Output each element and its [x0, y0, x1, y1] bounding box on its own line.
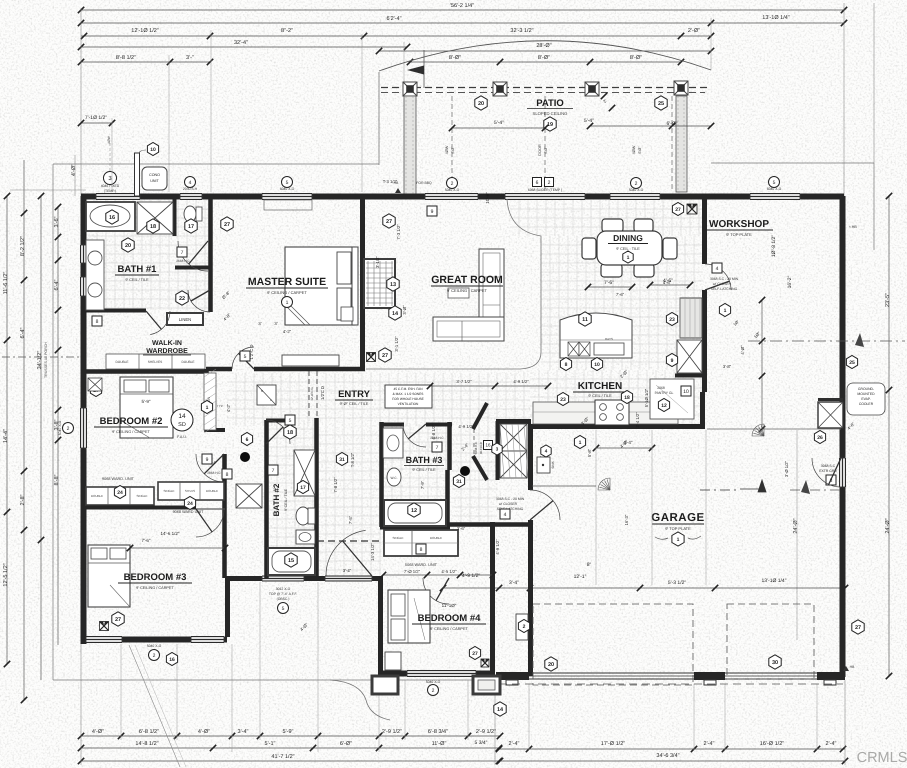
svg-text:9'-Ø" CEIL / TILE: 9'-Ø" CEIL / TILE [340, 402, 369, 406]
svg-text:GREAT ROOM: GREAT ROOM [431, 274, 503, 286]
svg-text:TRUSSES AT PORCH: TRUSSES AT PORCH [44, 342, 48, 378]
svg-text:12'-1": 12'-1" [574, 574, 587, 580]
svg-text:28'-Ø": 28'-Ø" [536, 43, 551, 49]
svg-text:FOR BBQ: FOR BBQ [416, 181, 432, 185]
svg-text:SD: SD [178, 422, 186, 428]
svg-text:7'-6": 7'-6" [142, 538, 151, 543]
svg-text:UNIT: UNIT [150, 179, 159, 183]
svg-text:'56'-2 1/4": '56'-2 1/4" [450, 3, 474, 9]
svg-text:2'-9 1/2": 2'-9 1/2" [382, 729, 402, 735]
svg-text:9: 9 [431, 209, 434, 215]
svg-text:45 C.F.M. ESH. FAN: 45 C.F.M. ESH. FAN [393, 387, 423, 391]
svg-text:9' CEILING / CARPET: 9' CEILING / CARPET [112, 430, 150, 434]
svg-text:4'-9 1/2": 4'-9 1/2" [513, 379, 529, 384]
svg-text:2: 2 [635, 181, 638, 187]
svg-text:4'-Ø": 4'-Ø" [92, 729, 104, 735]
svg-text:3012 X-O: 3012 X-O [276, 587, 291, 591]
svg-text:5: 5 [773, 180, 776, 186]
svg-text:DOUBLE: DOUBLE [91, 494, 103, 498]
svg-text:2668 H.C: 2668 H.C [176, 259, 190, 263]
svg-text:16'-2": 16'-2" [787, 275, 793, 288]
svg-text:8: 8 [565, 362, 568, 368]
svg-text:CRMLS: CRMLS [857, 750, 907, 766]
svg-text:RAYS: RAYS [605, 337, 613, 341]
svg-text:1: 1 [579, 440, 582, 446]
svg-text:25: 25 [658, 101, 664, 107]
svg-text:EVAP.: EVAP. [861, 397, 871, 401]
svg-text:10: 10 [683, 389, 689, 395]
svg-text:5: 5 [289, 418, 292, 424]
svg-text:& MAX. 1 1/2 SONES: & MAX. 1 1/2 SONES [393, 392, 424, 396]
svg-text:SINGLE: SINGLE [163, 489, 174, 493]
svg-text:3': 3' [274, 321, 277, 326]
svg-text:PANTRY GL: PANTRY GL [655, 391, 674, 395]
svg-text:10'-6": 10'-6" [485, 192, 490, 204]
svg-text:BI-FOLD: BI-FOLD [479, 441, 483, 454]
svg-text:12: 12 [661, 403, 667, 409]
svg-text:KITCHEN: KITCHEN [578, 381, 622, 392]
svg-text:24: 24 [117, 490, 123, 496]
svg-text:14'-4": 14'-4" [3, 429, 9, 443]
svg-text:3'-'': 3'-'' [186, 55, 194, 61]
svg-text:27: 27 [472, 651, 478, 657]
svg-text:5040 X-O: 5040 X-O [147, 644, 162, 648]
svg-text:6'Ø": 6'Ø" [638, 146, 642, 154]
svg-text:9' CEILING - CARPET: 9' CEILING - CARPET [447, 288, 487, 293]
svg-text:18: 18 [287, 430, 293, 436]
svg-text:4'-9 1/2": 4'-9 1/2" [495, 539, 500, 555]
svg-text:14: 14 [497, 707, 504, 713]
svg-text:2: 2 [67, 426, 70, 432]
svg-text:8": 8" [587, 562, 592, 568]
svg-text:27: 27 [386, 219, 392, 225]
svg-text:14: 14 [392, 311, 399, 317]
svg-text:20: 20 [478, 101, 484, 107]
svg-text:4ØW: 4ØW [445, 145, 449, 154]
svg-text:27: 27 [224, 222, 230, 228]
svg-text:27: 27 [675, 207, 681, 213]
svg-text:CONO: CONO [149, 173, 160, 177]
svg-text:9' CEIL / TILE: 9' CEIL / TILE [284, 488, 288, 511]
svg-text:9' CEIL / TILE: 9' CEIL / TILE [588, 394, 612, 398]
svg-text:8'-2 1/2": 8'-2 1/2" [20, 236, 26, 256]
svg-text:8: 8 [96, 319, 99, 325]
svg-text:17: 17 [188, 224, 194, 230]
svg-text:16: 16 [109, 215, 115, 221]
svg-text:6040 X-O: 6040 X-O [767, 187, 782, 191]
svg-text:9068 WARD. UNIT: 9068 WARD. UNIT [102, 477, 135, 481]
svg-text:9' CEIL / TILE: 9' CEIL / TILE [412, 468, 436, 472]
svg-text:9: 9 [206, 457, 209, 463]
svg-text:1: 1 [677, 537, 680, 543]
svg-text:30: 30 [772, 660, 778, 666]
svg-text:SH'LVS: SH'LVS [185, 489, 195, 493]
svg-text:5'-8": 5'-8" [587, 448, 592, 457]
svg-text:5040 X-O: 5040 X-O [445, 188, 460, 192]
svg-text:6'2'-4": 6'2'-4" [386, 16, 401, 22]
svg-text:5: 5 [244, 354, 247, 360]
svg-text:8: 8 [420, 547, 423, 553]
svg-text:4: 4 [716, 266, 719, 272]
svg-text:6: 6 [246, 437, 249, 443]
svg-text:5040 X-O: 5040 X-O [629, 188, 644, 192]
svg-text:BATH #3: BATH #3 [406, 455, 443, 465]
svg-text:11'-6 1/2": 11'-6 1/2" [3, 272, 9, 295]
svg-text:4ØW: 4ØW [107, 135, 111, 143]
svg-text:2'-8": 2'-8" [20, 494, 26, 505]
svg-text:14'-6 1/2": 14'-6 1/2" [161, 531, 180, 536]
svg-text:8'-8": 8'-8" [54, 474, 60, 485]
svg-text:7'-5": 7'-5" [348, 515, 353, 524]
svg-text:5'-1": 5'-1" [265, 741, 276, 747]
svg-text:4046 FIXED: 4046 FIXED [101, 184, 120, 188]
svg-text:1: 1 [286, 300, 289, 306]
svg-text:24'-Ø": 24'-Ø" [885, 518, 891, 533]
svg-text:(TEMP.): (TEMP.) [104, 189, 116, 193]
svg-text:7: 7 [272, 468, 275, 474]
svg-text:2: 2 [523, 624, 526, 630]
svg-text:16: 16 [485, 443, 491, 448]
svg-text:GROUND-: GROUND- [858, 387, 874, 391]
svg-text:2: 2 [432, 688, 435, 694]
svg-text:DOUBLE: DOUBLE [206, 489, 218, 493]
svg-text:4'-8 1/2": 4'-8 1/2" [431, 424, 436, 440]
svg-text:27: 27 [115, 617, 121, 623]
svg-text:1'2'-C D: 1'2'-C D [249, 345, 254, 360]
svg-text:6'Ø": 6'Ø" [544, 146, 548, 154]
svg-text:BEDROOM #4: BEDROOM #4 [418, 613, 482, 624]
svg-text:3'-1/2": 3'-1/2" [375, 256, 380, 268]
svg-text:2'-Ø": 2'-Ø" [688, 28, 700, 34]
svg-text:23: 23 [669, 317, 675, 323]
svg-text:23'-5": 23'-5" [885, 293, 891, 307]
svg-text:1: 1 [206, 405, 209, 411]
svg-text:7'-3 1/2": 7'-3 1/2" [396, 224, 401, 240]
svg-text:1: 1 [627, 255, 630, 261]
svg-text:TOP @ 7'-4" A.F.F.: TOP @ 7'-4" A.F.F. [269, 592, 297, 596]
svg-text:LINEN: LINEN [179, 317, 191, 322]
svg-text:4: 4 [189, 180, 192, 186]
svg-text:w/ CLOSER: w/ CLOSER [499, 502, 518, 506]
svg-text:10: 10 [594, 362, 600, 368]
svg-text:7: 7 [181, 250, 184, 256]
svg-text:1Ø'-8 1/2": 1Ø'-8 1/2" [771, 235, 777, 257]
svg-text:3'-Ø": 3'-Ø" [402, 305, 407, 315]
svg-text:W.C.: W.C. [391, 476, 398, 480]
svg-text:BATH #2: BATH #2 [272, 483, 281, 516]
svg-text:9' TOP PLATE: 9' TOP PLATE [726, 232, 752, 237]
svg-text:2: 2 [153, 653, 156, 659]
svg-text:4'-9 1/2": 4'-9 1/2" [458, 424, 474, 429]
svg-text:27: 27 [855, 625, 861, 631]
svg-text:2068: 2068 [657, 386, 665, 390]
svg-text:8'-8 1/2": 8'-8 1/2" [116, 55, 136, 61]
svg-text:4'-5 1/2": 4'-5 1/2" [441, 569, 457, 574]
svg-text:7: 7 [436, 445, 439, 451]
svg-text:4'-Ø": 4'-Ø" [71, 164, 77, 176]
svg-text:14'-8 1/2": 14'-8 1/2" [135, 741, 158, 747]
svg-text:12: 12 [411, 508, 417, 514]
svg-text:ENTRY: ENTRY [338, 389, 371, 400]
svg-text:6'-8 3/4": 6'-8 3/4" [428, 729, 448, 735]
svg-text:SINGLE: SINGLE [392, 536, 403, 540]
svg-text:9' CEIL - TILE: 9' CEIL - TILE [616, 247, 640, 251]
svg-text:2'-9 1/2": 2'-9 1/2" [476, 729, 496, 735]
svg-text:T-3 1/2": T-3 1/2" [383, 179, 398, 184]
svg-text:MOUNTED: MOUNTED [857, 392, 875, 396]
svg-text:VENTILATION: VENTILATION [398, 402, 419, 406]
svg-text:5040 X-O: 5040 X-O [58, 420, 62, 435]
svg-text:4'-4": 4'-4" [624, 440, 633, 445]
svg-text:20: 20 [548, 662, 554, 668]
svg-text:32'-3 1/2": 32'-3 1/2" [510, 28, 533, 34]
svg-text:5040 X-O: 5040 X-O [426, 680, 441, 684]
svg-text:DOOR: DOOR [538, 144, 542, 156]
svg-text:(OBSC.): (OBSC.) [277, 597, 290, 601]
svg-text:•-HB: •-HB [849, 225, 857, 229]
svg-text:8''-2": 8''-2" [281, 28, 293, 34]
svg-text:6'-Ø": 6'-Ø" [340, 741, 352, 747]
svg-text:9' TOP PLATE: 9' TOP PLATE [665, 526, 691, 531]
svg-text:12'-5 1/2": 12'-5 1/2" [3, 563, 9, 586]
svg-text:3'-6": 3'-6" [54, 216, 60, 227]
svg-text:3': 3' [258, 321, 261, 326]
svg-text:23: 23 [560, 397, 566, 403]
svg-text:2: 2 [548, 180, 551, 186]
svg-text:20: 20 [125, 243, 131, 249]
svg-text:4'-2": 4'-2" [226, 403, 231, 412]
svg-text:A: A [270, 398, 272, 402]
svg-text:16'-3": 16'-3" [624, 514, 629, 525]
svg-text:6'-4": 6'-4" [20, 327, 26, 338]
svg-text:w/ CLOSER: w/ CLOSER [713, 282, 732, 286]
svg-text:SELF-LATCHING: SELF-LATCHING [711, 287, 738, 291]
svg-text:31: 31 [456, 479, 462, 485]
svg-text:11'-1Ø": 11'-1Ø" [442, 603, 457, 608]
svg-text:12'-1Ø 1/2": 12'-1Ø 1/2" [131, 28, 159, 34]
svg-text:5'-4": 5'-4" [494, 120, 504, 126]
svg-text:HB: HB [850, 665, 855, 669]
svg-text:22: 22 [179, 296, 185, 302]
svg-text:24'-Ø": 24'-Ø" [793, 518, 799, 533]
svg-text:8: 8 [226, 472, 229, 478]
svg-text:4'-2": 4'-2" [283, 329, 292, 334]
svg-text:14: 14 [178, 413, 186, 420]
svg-text:3'-4 1/2": 3'-4 1/2" [635, 412, 640, 428]
svg-text:34'-6 3/4": 34'-6 3/4" [656, 753, 679, 759]
svg-text:BEDROOM #2: BEDROOM #2 [100, 416, 163, 427]
svg-text:4'-Ø": 4'-Ø" [740, 345, 745, 355]
svg-text:3'-7 1/2": 3'-7 1/2" [456, 379, 472, 384]
svg-text:7'-6": 7'-6" [604, 280, 614, 286]
svg-text:6: 6 [536, 180, 539, 186]
svg-text:7'-8 1/2": 7'-8 1/2" [333, 477, 338, 493]
svg-text:11: 11 [582, 317, 588, 323]
svg-text:3068 S.C: 3068 S.C [821, 464, 836, 468]
svg-text:DOUBLE: DOUBLE [430, 536, 442, 540]
svg-text:13: 13 [390, 282, 396, 288]
svg-text:4: 4 [504, 512, 507, 518]
svg-text:3068 S.C - 20 MIN: 3068 S.C - 20 MIN [496, 497, 525, 501]
svg-text:SHELVES: SHELVES [148, 360, 162, 364]
svg-text:SLOPED CEILING: SLOPED CEILING [533, 111, 568, 116]
svg-text:8'-Ø": 8'-Ø" [630, 55, 642, 61]
svg-text:9' CEILING / CARPET: 9' CEILING / CARPET [430, 627, 468, 631]
svg-text:5'-9": 5'-9" [142, 399, 151, 404]
svg-text:6'Ø": 6'Ø" [451, 146, 455, 154]
svg-text:F.A.U.: F.A.U. [177, 435, 187, 439]
svg-text:5'-3 1/2": 5'-3 1/2" [668, 580, 687, 586]
svg-text:18: 18 [150, 224, 156, 230]
svg-text:41'-7 1/2": 41'-7 1/2" [271, 754, 294, 760]
svg-text:2: 2 [451, 181, 454, 187]
svg-text:31: 31 [339, 457, 345, 463]
svg-text:2'-4": 2'-4" [826, 741, 837, 747]
svg-text:DOUBLE: DOUBLE [181, 360, 194, 364]
svg-text:3'-8": 3'-8" [723, 364, 732, 369]
svg-text:WARDROBE: WARDROBE [146, 348, 188, 355]
svg-text:FOR WHOLE HOUSE: FOR WHOLE HOUSE [392, 397, 424, 401]
svg-text:4'-6": 4'-6" [663, 280, 672, 285]
svg-text:7'-9": 7'-9" [420, 480, 425, 489]
svg-text:6040 X-O: 6040 X-O [280, 187, 295, 191]
svg-text:9' CEIL / TILE: 9' CEIL / TILE [125, 278, 149, 282]
svg-text:3'-1 1/2": 3'-1 1/2" [394, 336, 399, 352]
svg-text:10: 10 [150, 147, 156, 153]
svg-text:6068 SLIDER (TEMP ): 6068 SLIDER (TEMP ) [528, 188, 562, 192]
svg-text:MASTER SUITE: MASTER SUITE [248, 276, 326, 288]
svg-text:2868 H.C: 2868 H.C [207, 471, 221, 475]
svg-text:8'-Ø": 8'-Ø" [538, 55, 550, 61]
svg-text:16: 16 [169, 657, 175, 663]
svg-text:9' CEILING / CARPET: 9' CEILING / CARPET [267, 290, 307, 295]
svg-text:32'-4": 32'-4" [234, 40, 248, 46]
svg-text:DOUBLE: DOUBLE [115, 360, 128, 364]
svg-text:13'-1Ø 1/4": 13'-1Ø 1/4" [762, 578, 787, 584]
svg-text:BATH #1: BATH #1 [118, 264, 158, 275]
svg-text:9' CEILING / CARPET: 9' CEILING / CARPET [136, 586, 174, 590]
svg-text:BEDROOM #3: BEDROOM #3 [124, 572, 187, 583]
svg-text:24: 24 [187, 501, 193, 507]
svg-text:8'-Ø": 8'-Ø" [449, 55, 461, 61]
svg-text:27: 27 [382, 353, 388, 359]
svg-text:2'-4": 2'-4" [509, 741, 520, 747]
svg-text:2030 S.H: 2030 S.H [183, 187, 198, 191]
svg-text:1/2'C D: 1/2'C D [320, 386, 325, 400]
svg-text:13'-1Ø 1/4": 13'-1Ø 1/4" [762, 15, 790, 21]
svg-text:3068 S.C - 20 MIN: 3068 S.C - 20 MIN [710, 277, 739, 281]
svg-text:17: 17 [300, 485, 306, 491]
svg-text:7'-1Ø 1/2": 7'-1Ø 1/2" [85, 115, 107, 121]
svg-text:1: 1 [724, 308, 727, 314]
svg-text:34'-1/2": 34'-1/2" [37, 351, 43, 370]
svg-text:5068 H.C: 5068 H.C [474, 441, 478, 455]
svg-text:SINGLE: SINGLE [136, 494, 147, 498]
svg-text:3'-4": 3'-4" [509, 580, 519, 586]
svg-text:5: 5 [286, 180, 289, 186]
svg-text:15: 15 [288, 558, 294, 564]
svg-text:17'-Ø 1/2": 17'-Ø 1/2" [601, 741, 625, 747]
svg-text:3'-4": 3'-4" [343, 568, 352, 573]
svg-text:3'-4": 3'-4" [238, 729, 249, 735]
svg-text:4'-9 1/2": 4'-9 1/2" [462, 573, 481, 579]
svg-text:4ØW: 4ØW [632, 145, 636, 154]
svg-text:26: 26 [817, 435, 823, 441]
svg-text:TYP.: TYP. [217, 404, 223, 408]
svg-text:5'-9": 5'-9" [283, 729, 294, 735]
svg-text:4'-Ø": 4'-Ø" [198, 729, 210, 735]
svg-text:GARAGE: GARAGE [651, 512, 704, 524]
svg-text:3'-Ø 1/2": 3'-Ø 1/2" [784, 460, 789, 477]
svg-text:COOLER: COOLER [859, 402, 874, 406]
svg-text:6'-4": 6'-4" [54, 279, 60, 290]
svg-text:2'-4": 2'-4" [704, 741, 715, 747]
svg-text:18: 18 [624, 395, 630, 401]
svg-text:25: 25 [849, 360, 855, 366]
svg-text:16'-Ø 1/2": 16'-Ø 1/2" [760, 741, 784, 747]
svg-text:6'-8 1/2": 6'-8 1/2" [139, 729, 159, 735]
svg-text:5'-1Ø 1/2": 5'-1Ø 1/2" [644, 388, 649, 407]
svg-text:7'-Ø 1/2": 7'-Ø 1/2" [404, 569, 421, 574]
svg-text:12'-Ø C.G: 12'-Ø C.G [310, 387, 314, 401]
svg-text:5: 5 [282, 606, 285, 612]
svg-text:9: 9 [671, 358, 674, 364]
svg-text:PATIO: PATIO [536, 98, 564, 109]
svg-text:T-8 1/2": T-8 1/2" [350, 452, 355, 467]
svg-text:14'-3 1/2": 14'-3 1/2" [370, 543, 375, 561]
svg-text:5068 WARD. UNIT: 5068 WARD. UNIT [405, 563, 438, 567]
svg-text:SINK: SINK [551, 460, 555, 468]
svg-text:11'-Ø": 11'-Ø" [432, 741, 447, 747]
svg-text:WALK-IN: WALK-IN [152, 340, 182, 347]
svg-text:DINING: DINING [613, 233, 643, 243]
svg-text:WORKSHOP: WORKSHOP [709, 219, 769, 230]
svg-text:7'-6": 7'-6" [616, 292, 625, 297]
svg-text:5 3/4": 5 3/4" [475, 740, 488, 746]
